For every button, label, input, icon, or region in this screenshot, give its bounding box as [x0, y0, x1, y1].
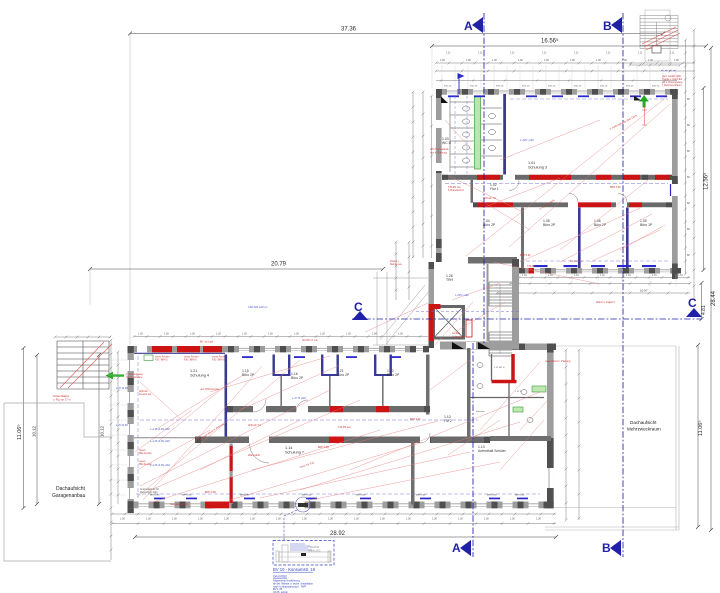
svg-text:Büro 2P: Büro 2P	[291, 376, 304, 380]
svg-text:Vorraum: Vorraum	[476, 410, 484, 413]
svg-text:10.12: 10.12	[32, 425, 37, 437]
svg-text:1.38: 1.38	[346, 333, 351, 336]
svg-text:F30 / BRH 0: F30 / BRH 0	[184, 359, 197, 361]
svg-text:1.38: 1.38	[328, 518, 333, 521]
svg-text:BRH 0.88: BRH 0.88	[487, 495, 497, 497]
svg-text:Schulung 3: Schulung 3	[528, 165, 547, 169]
svg-text:90/2.26: 90/2.26	[496, 86, 504, 88]
svg-text:28.92: 28.92	[330, 531, 346, 537]
svg-text:Dachaufsicht: Dachaufsicht	[630, 420, 657, 425]
svg-text:90/2.26: 90/2.26	[652, 86, 660, 88]
svg-text:L+H/O. uöM: L+H/O. uöM	[520, 139, 534, 142]
svg-text:1.01: 1.01	[528, 161, 535, 165]
svg-text:L+1.26 (2.26) uöM: L+1.26 (2.26) uöM	[150, 440, 170, 443]
svg-text:BRH 0.90: BRH 0.90	[520, 254, 531, 257]
svg-text:neu lt. Planung: neu lt. Planung	[430, 152, 447, 155]
svg-text:1.11: 1.11	[542, 52, 547, 55]
svg-text:1.14: 1.14	[285, 446, 292, 450]
svg-text:1.38: 1.38	[380, 518, 385, 521]
svg-text:1.38: 1.38	[268, 333, 273, 336]
svg-text:1.38: 1.38	[190, 333, 195, 336]
svg-text:1.01: 1.01	[574, 274, 579, 277]
svg-text:TRH: TRH	[446, 278, 454, 282]
svg-text:BRH 0.88: BRH 0.88	[416, 495, 426, 497]
svg-text:BRH 0.88: BRH 0.88	[150, 495, 160, 497]
svg-text:1.11 WC D: 1.11 WC D	[494, 367, 505, 369]
svg-text:Fenster neu: Fenster neu	[570, 260, 583, 263]
svg-text:Büro 2P: Büro 2P	[483, 223, 496, 227]
svg-text:neue Wand n. Planung: neue Wand n. Planung	[545, 360, 571, 363]
svg-text:1.38: 1.38	[544, 59, 549, 62]
svg-text:BV 10 - Konsumstr. 18: BV 10 - Konsumstr. 18	[273, 567, 316, 572]
svg-text:1.38: 1.38	[458, 518, 463, 521]
svg-text:Dachaufsicht: Dachaufsicht	[56, 486, 86, 492]
svg-text:RW-Fenster: RW-Fenster	[139, 452, 152, 455]
svg-text:1.11: 1.11	[446, 52, 451, 55]
svg-text:F30 / BRH 0: F30 / BRH 0	[212, 359, 225, 361]
svg-text:BRH 0.88: BRH 0.88	[356, 495, 366, 497]
svg-text:1.38: 1.38	[354, 518, 359, 521]
svg-text:1.38: 1.38	[570, 59, 575, 62]
svg-text:1.01: 1.01	[626, 274, 631, 277]
svg-text:neues Fenster: neues Fenster	[155, 356, 170, 359]
svg-text:1.38: 1.38	[432, 518, 437, 521]
svg-text:16.56⁵: 16.56⁵	[541, 38, 559, 45]
svg-text:Büro 1P: Büro 1P	[640, 223, 653, 227]
svg-text:1.38: 1.38	[294, 333, 299, 336]
svg-text:1.38: 1.38	[320, 333, 325, 336]
svg-text:1.01: 1.01	[678, 274, 683, 277]
svg-text:1.38: 1.38	[276, 518, 281, 521]
svg-text:1.38: 1.38	[510, 518, 515, 521]
svg-text:Wand abbr.: Wand abbr.	[248, 454, 261, 457]
svg-text:BRH 0.90: BRH 0.90	[610, 186, 621, 189]
svg-text:Fenster kpl.: Fenster kpl.	[139, 393, 152, 396]
svg-text:1.38: 1.38	[536, 518, 541, 521]
svg-text:FM 2: FM 2	[444, 419, 452, 423]
svg-text:10.12: 10.12	[100, 425, 105, 437]
svg-text:BRH 0.90: BRH 0.90	[410, 418, 421, 421]
svg-text:1.38: 1.38	[596, 59, 601, 62]
svg-text:1.11: 1.11	[606, 52, 611, 55]
svg-text:BRH 0.90: BRH 0.90	[205, 491, 216, 494]
svg-text:1.01: 1.01	[652, 274, 657, 277]
svg-text:Büro 2P: Büro 2P	[543, 223, 556, 227]
svg-text:90/2.26: 90/2.26	[548, 86, 556, 88]
svg-text:Aufzug neu: Aufzug neu	[452, 336, 465, 339]
svg-text:1.38: 1.38	[466, 59, 471, 62]
svg-text:1.38: 1.38	[518, 59, 523, 62]
svg-text:1.11: 1.11	[670, 52, 675, 55]
svg-text:1.38: 1.38	[172, 518, 177, 521]
svg-text:T30-RS neu: T30-RS neu	[338, 426, 352, 429]
svg-text:12.56⁵: 12.56⁵	[703, 172, 710, 190]
svg-text:Schulung 4: Schulung 4	[190, 373, 209, 377]
svg-text:1.01: 1.01	[522, 274, 527, 277]
svg-text:Aufenthalt Schüler: Aufenthalt Schüler	[478, 449, 507, 453]
svg-text:1.38: 1.38	[224, 518, 229, 521]
svg-text:B: B	[602, 541, 611, 555]
svg-text:90/2.26: 90/2.26	[522, 86, 530, 88]
svg-text:37.36: 37.36	[341, 27, 357, 33]
svg-text:A: A	[464, 19, 473, 33]
svg-text:1.01: 1.01	[600, 274, 605, 277]
svg-text:L+H/O. uöM: L+H/O. uöM	[455, 294, 469, 297]
svg-text:90/2.26: 90/2.26	[600, 86, 608, 88]
svg-text:90/2.26: 90/2.26	[626, 86, 634, 88]
svg-text:Podest +: Podest +	[390, 260, 400, 263]
svg-text:RW-Fenster: RW-Fenster	[139, 463, 152, 466]
svg-text:CAD 623 uöM cm: CAD 623 uöM cm	[248, 306, 268, 309]
svg-text:1.38: 1.38	[440, 59, 445, 62]
svg-text:Büro 2P: Büro 2P	[337, 373, 350, 377]
svg-text:L+H 70 uöM: L+H 70 uöM	[292, 397, 306, 400]
svg-text:1.38: 1.38	[372, 333, 377, 336]
svg-text:1.21: 1.21	[190, 369, 197, 373]
svg-text:Anbau Balkon: Anbau Balkon	[53, 394, 70, 398]
svg-text:1.38: 1.38	[302, 518, 307, 521]
svg-text:Fassade saniert: Fassade saniert	[170, 503, 188, 506]
svg-text:1.38: 1.38	[146, 518, 151, 521]
svg-text:30.005 m² o.ä.: 30.005 m² o.ä.	[302, 339, 318, 342]
svg-text:1.38: 1.38	[164, 333, 169, 336]
svg-text:BK. mit o.gel.: BK. mit o.gel.	[200, 341, 214, 344]
svg-text:1.38: 1.38	[250, 518, 255, 521]
svg-text:Wand n. tragend: Wand n. tragend	[596, 301, 615, 304]
svg-text:L+H 10.08: L+H 10.08	[116, 424, 128, 427]
svg-text:1.38: 1.38	[406, 518, 411, 521]
svg-text:F30 / BRH 0: F30 / BRH 0	[155, 359, 168, 361]
svg-text:90/2.26: 90/2.26	[574, 86, 582, 88]
svg-text:L+H 10.08: L+H 10.08	[116, 387, 128, 390]
svg-text:90/2.26: 90/2.26	[470, 86, 478, 88]
svg-text:BRH 0.88: BRH 0.88	[302, 495, 312, 497]
svg-text:4.81: 4.81	[701, 305, 707, 315]
svg-text:1.11: 1.11	[574, 52, 579, 55]
svg-text:über Freitreppe: über Freitreppe	[126, 376, 143, 379]
svg-text:Garagenanbau: Garagenanbau	[52, 493, 86, 499]
svg-text:C: C	[688, 296, 697, 310]
svg-text:1.11: 1.11	[510, 52, 515, 55]
svg-text:Schulung 7: Schulung 7	[285, 450, 304, 454]
svg-text:1.11: 1.11	[638, 52, 643, 55]
svg-text:T30-RS: T30-RS	[527, 265, 536, 268]
svg-text:BRH 0.88: BRH 0.88	[240, 495, 250, 497]
svg-text:Mehrzweckraum: Mehrzweckraum	[627, 427, 661, 432]
svg-text:90/2.26: 90/2.26	[444, 86, 452, 88]
svg-text:neu: RW-Fenster: neu: RW-Fenster	[200, 388, 219, 391]
svg-text:1.01: 1.01	[548, 274, 553, 277]
svg-text:L+1.26 (2.26) uöM: L+1.26 (2.26) uöM	[150, 464, 170, 467]
svg-text:10.97: 10.97	[640, 289, 648, 293]
svg-text:1.38: 1.38	[398, 333, 403, 336]
svg-text:u. Flg.-tor 17 m: u. Flg.-tor 17 m	[53, 398, 71, 402]
svg-text:1.38: 1.38	[492, 59, 497, 62]
svg-text:BRH 0.88: BRH 0.88	[182, 495, 192, 497]
svg-text:11.06⁵: 11.06⁵	[16, 424, 23, 440]
svg-text:1.38: 1.38	[648, 59, 653, 62]
svg-text:Büro 2P: Büro 2P	[387, 373, 400, 377]
svg-text:Grundriss: Grundriss	[273, 575, 287, 579]
svg-text:WC D: WC D	[442, 141, 452, 145]
svg-text:1.38: 1.38	[216, 333, 221, 336]
svg-text:11.06⁵: 11.06⁵	[697, 420, 704, 436]
svg-text:A: A	[452, 541, 461, 555]
svg-text:C: C	[354, 300, 363, 314]
svg-text:ANALOG: ANALOG	[308, 548, 321, 552]
svg-text:1.38: 1.38	[674, 59, 679, 62]
svg-text:f. Mehrzweckraum: f. Mehrzweckraum	[662, 84, 682, 87]
svg-text:1.38: 1.38	[120, 518, 125, 521]
svg-text:1.38: 1.38	[138, 333, 143, 336]
svg-text:Flur 1: Flur 1	[490, 187, 499, 191]
svg-text:1.38: 1.38	[242, 333, 247, 336]
svg-text:28.44: 28.44	[711, 290, 717, 306]
svg-text:1.38: 1.38	[198, 518, 203, 521]
svg-text:L+1.26 (2.26) uöM: L+1.26 (2.26) uöM	[150, 428, 170, 431]
svg-text:BRH 0.88: BRH 0.88	[515, 495, 525, 497]
svg-text:1.38: 1.38	[484, 518, 489, 521]
svg-text:20.79: 20.79	[271, 262, 287, 268]
svg-text:lt. Brandschutz: lt. Brandschutz	[448, 189, 465, 192]
svg-text:1.11: 1.11	[478, 52, 483, 55]
svg-text:Abbruch Tür: Abbruch Tür	[483, 197, 496, 200]
svg-text:BRH 0.90: BRH 0.90	[318, 446, 329, 449]
svg-text:B: B	[603, 19, 612, 33]
svg-text:neues Fenster: neues Fenster	[184, 356, 199, 359]
